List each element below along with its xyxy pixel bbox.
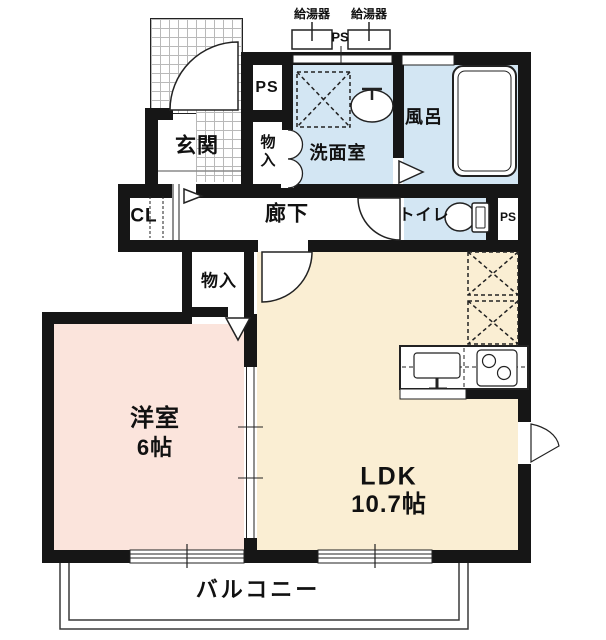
- washroom-label: 洗面室: [310, 144, 367, 162]
- storage-top-label: 物入: [260, 134, 275, 170]
- western-room-size: 6帖: [137, 437, 173, 459]
- sink-icon: [351, 89, 393, 122]
- floorplan: 給湯器 給湯器 PS PS 物入 玄関 洗面室 風呂 CL 廊下 トイレ PS …: [0, 0, 606, 640]
- genkan-hall-opening: [172, 184, 202, 240]
- sliding-door-partition: [238, 367, 263, 538]
- washing-machine-area: [297, 72, 350, 127]
- entrance-door-arc: [170, 42, 238, 110]
- genkan-label: 玄関: [175, 136, 219, 157]
- kitchen-counter: [400, 346, 528, 399]
- bathtub-icon: [453, 66, 516, 176]
- ldk-label: LDK: [360, 465, 417, 490]
- water-heater-left-label: 給湯器: [294, 8, 330, 20]
- water-heater-right-label: 給湯器: [351, 8, 387, 20]
- bath-window: [402, 55, 454, 65]
- kitchen-sink-icon: [414, 353, 460, 378]
- washroom-window: [293, 55, 392, 63]
- cl-label: CL: [130, 207, 157, 226]
- ldk-outer-door: [518, 422, 559, 464]
- balcony-label: バルコニー: [196, 579, 321, 601]
- storage-bifold-doors: [281, 130, 303, 188]
- ps-top-label: PS: [331, 31, 348, 44]
- ps-lower-label: PS: [500, 211, 516, 223]
- western-room-window: [130, 544, 244, 568]
- toilet-door-arc: [358, 198, 400, 240]
- floorplan-drawing: [0, 0, 606, 640]
- appliance-space-boxes: [468, 252, 518, 344]
- ps-upper-label: PS: [255, 80, 278, 96]
- ldk-window: [318, 544, 432, 568]
- hallway-label: 廊下: [265, 204, 309, 225]
- toilet-label: トイレ: [398, 208, 449, 224]
- bath-label: 風呂: [405, 108, 443, 126]
- ldk-size: 10.7帖: [351, 493, 427, 517]
- bath-door-marker: [399, 161, 423, 183]
- western-room-label: 洋室: [130, 407, 180, 431]
- storage2-door-marker: [226, 318, 250, 340]
- storage-mid-label: 物入: [201, 273, 237, 290]
- toilet-icon: [445, 203, 489, 232]
- stove-icon: [477, 350, 517, 386]
- ldk-door-arc: [262, 252, 312, 302]
